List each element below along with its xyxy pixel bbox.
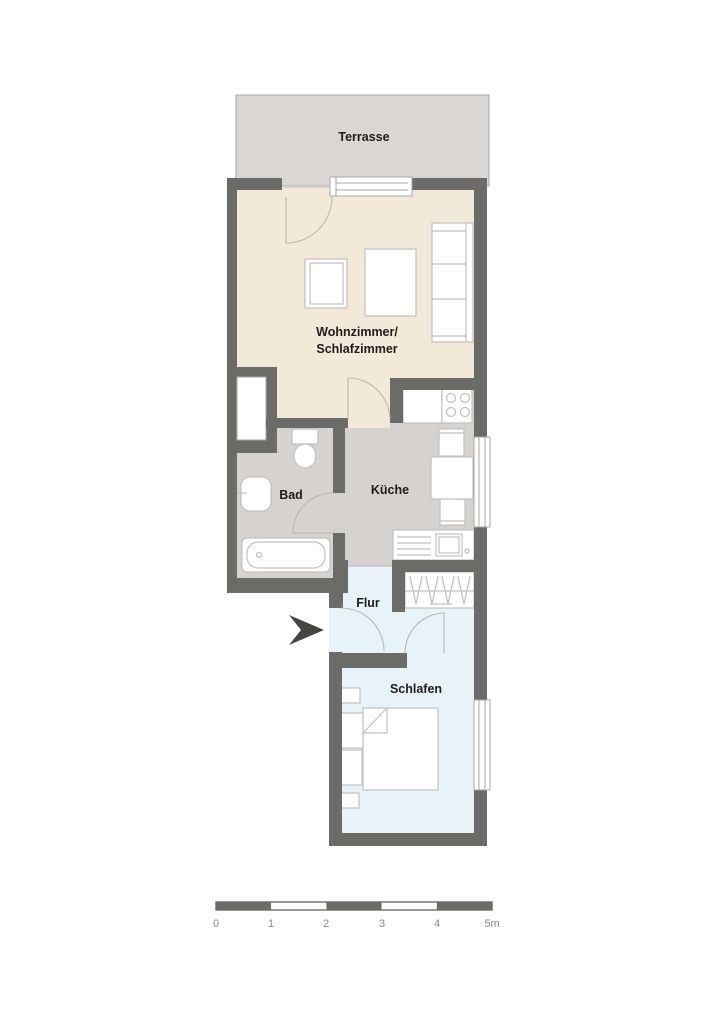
wall-bad-right-upper <box>333 418 345 493</box>
schlafen-window <box>474 700 490 790</box>
scale-segment <box>271 902 326 910</box>
toilet <box>292 429 318 468</box>
scale-label-3: 3 <box>379 918 385 930</box>
label-flur: Flur <box>356 596 380 610</box>
scale-bar: 0 1 2 3 4 5m <box>213 902 500 930</box>
wall-kitchen-bottom <box>392 560 487 572</box>
coffee-table <box>365 249 416 316</box>
wall-bad-bottom <box>227 578 348 593</box>
kitchen-flur-passage-floor <box>348 560 392 566</box>
dining-table <box>431 457 473 499</box>
scale-label-1: 1 <box>268 918 274 930</box>
bathtub <box>242 538 330 572</box>
entrance-arrow-icon <box>289 615 324 645</box>
nightstand-2 <box>341 713 363 748</box>
sideboard <box>305 259 347 308</box>
label-schlafen: Schlafen <box>390 682 442 696</box>
wall-niche-bottom <box>227 440 266 453</box>
nightstand-1 <box>341 688 360 703</box>
kitchen-counter <box>403 388 442 423</box>
sofa <box>432 223 473 342</box>
bed <box>363 708 438 790</box>
wash-basin <box>236 477 271 511</box>
wall-schlafen-top <box>342 653 407 668</box>
wall-schlafen-left <box>329 652 342 846</box>
floor-plan-page: Terrasse Wohnzimmer/ Schlafzimmer Bad Kü… <box>0 0 724 1024</box>
living-kitchen-door-floor <box>348 418 390 428</box>
label-bad: Bad <box>279 488 303 502</box>
terrace-sliding-window <box>330 177 412 196</box>
scale-label-4: 4 <box>434 918 440 930</box>
wall-niche-right <box>266 377 277 453</box>
wall-left-outer <box>227 178 237 593</box>
wall-right-upper <box>474 178 487 437</box>
nightstand-3 <box>341 750 362 785</box>
stove <box>442 388 472 423</box>
scale-label-2: 2 <box>323 918 329 930</box>
niche-interior <box>237 377 266 440</box>
wall-entrance-upper-jamb <box>329 593 343 608</box>
label-wohnzimmer-line1: Wohnzimmer/ <box>316 325 398 339</box>
label-terrasse: Terrasse <box>338 130 389 144</box>
kitchen-window <box>474 437 490 527</box>
wall-kitchen-stub <box>390 378 403 423</box>
wall-right-middle <box>474 527 487 700</box>
scale-segment <box>326 902 381 910</box>
scale-segment <box>437 902 492 910</box>
room-flur-floor <box>343 572 392 652</box>
scale-label-5m: 5m <box>484 918 499 930</box>
scale-segment <box>216 902 271 910</box>
label-kueche: Küche <box>371 483 409 497</box>
wall-niche-top <box>227 367 277 377</box>
scale-label-0: 0 <box>213 918 219 930</box>
bad-door-floor <box>333 493 345 533</box>
flur-passage-floor <box>348 566 392 572</box>
nightstand-4 <box>341 793 359 808</box>
wardrobe <box>405 572 474 608</box>
label-wohnzimmer-line2: Schlafzimmer <box>316 342 397 356</box>
wall-flur-top-corner <box>336 560 348 593</box>
sink-counter <box>393 530 474 560</box>
floor-plan-svg: Terrasse Wohnzimmer/ Schlafzimmer Bad Kü… <box>0 0 724 1024</box>
entrance-door-floor <box>329 608 343 652</box>
wall-nook-stub <box>392 570 405 612</box>
wall-schlafen-bottom <box>329 833 487 846</box>
scale-segment <box>382 902 437 910</box>
